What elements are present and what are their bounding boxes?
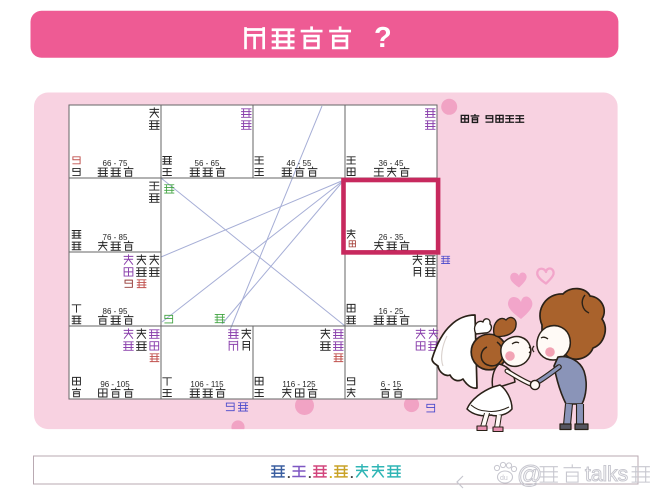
svg-text:.: . [308, 466, 312, 481]
svg-text:116 - 125: 116 - 125 [282, 380, 316, 389]
svg-text:86 - 95: 86 - 95 [103, 307, 128, 316]
svg-text:36 - 45: 36 - 45 [379, 159, 404, 168]
svg-text:6 - 15: 6 - 15 [381, 380, 402, 389]
svg-text:66 - 75: 66 - 75 [103, 159, 128, 168]
svg-text:56 - 65: 56 - 65 [195, 159, 220, 168]
svg-text:@: @ [517, 461, 542, 489]
svg-text:.: . [329, 466, 333, 481]
svg-text:.: . [287, 466, 291, 481]
svg-text:16 - 25: 16 - 25 [379, 307, 404, 316]
svg-text:.: . [350, 466, 354, 481]
svg-text:96 - 105: 96 - 105 [100, 380, 130, 389]
svg-text:46 - 55: 46 - 55 [287, 159, 312, 168]
svg-text:?: ? [374, 22, 392, 54]
svg-text:106 - 115: 106 - 115 [190, 380, 224, 389]
svg-text:du: du [500, 475, 508, 482]
svg-text:talks: talks [585, 463, 628, 486]
svg-text:76 - 85: 76 - 85 [103, 233, 128, 242]
svg-text:26 - 35: 26 - 35 [379, 233, 404, 242]
